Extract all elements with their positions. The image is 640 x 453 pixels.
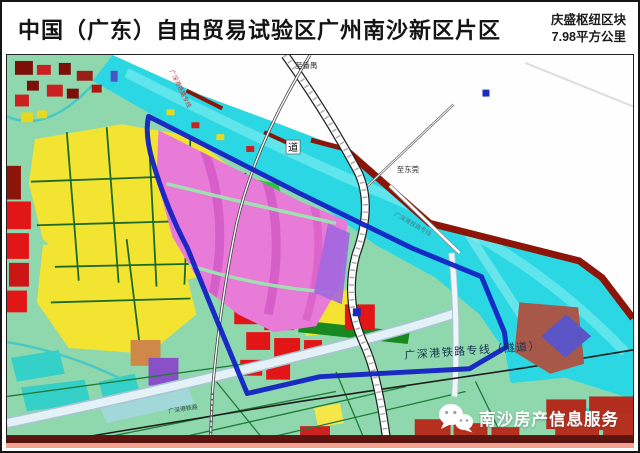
- block-name: 庆盛枢纽区块: [551, 12, 626, 29]
- bottom-salmon-strip: [6, 442, 634, 448]
- label-river-char: 道: [288, 141, 298, 154]
- river-name-box: 道: [286, 140, 300, 154]
- block-area: 7.98平方公里: [551, 29, 626, 46]
- page-title: 中国（广东）自由贸易试验区广州南沙新区片区: [18, 13, 501, 45]
- block-info: 庆盛枢纽区块 7.98平方公里: [551, 12, 628, 46]
- screenshot-root: 中国（广东）自由贸易试验区广州南沙新区片区 庆盛枢纽区块 7.98平方公里: [0, 0, 640, 453]
- planning-map-canvas: 至番禺 至东莞 道 广深港铁路专线（隧道） 广深港铁路专线 广深港铁路专线 广深…: [7, 55, 633, 441]
- planning-map: 至番禺 至东莞 道 广深港铁路专线（隧道） 广深港铁路专线 广深港铁路专线 广深…: [6, 54, 634, 442]
- map-header: 中国（广东）自由贸易试验区广州南沙新区片区 庆盛枢纽区块 7.98平方公里: [2, 2, 638, 54]
- wechat-icon: [438, 403, 474, 433]
- watermark: 南沙房产信息服务: [438, 403, 619, 433]
- label-to-panyu: 至番禺: [295, 60, 317, 70]
- watermark-text: 南沙房产信息服务: [479, 406, 619, 430]
- bottom-maroon-strip: [7, 435, 633, 441]
- label-to-dongguan: 至东莞: [397, 164, 420, 174]
